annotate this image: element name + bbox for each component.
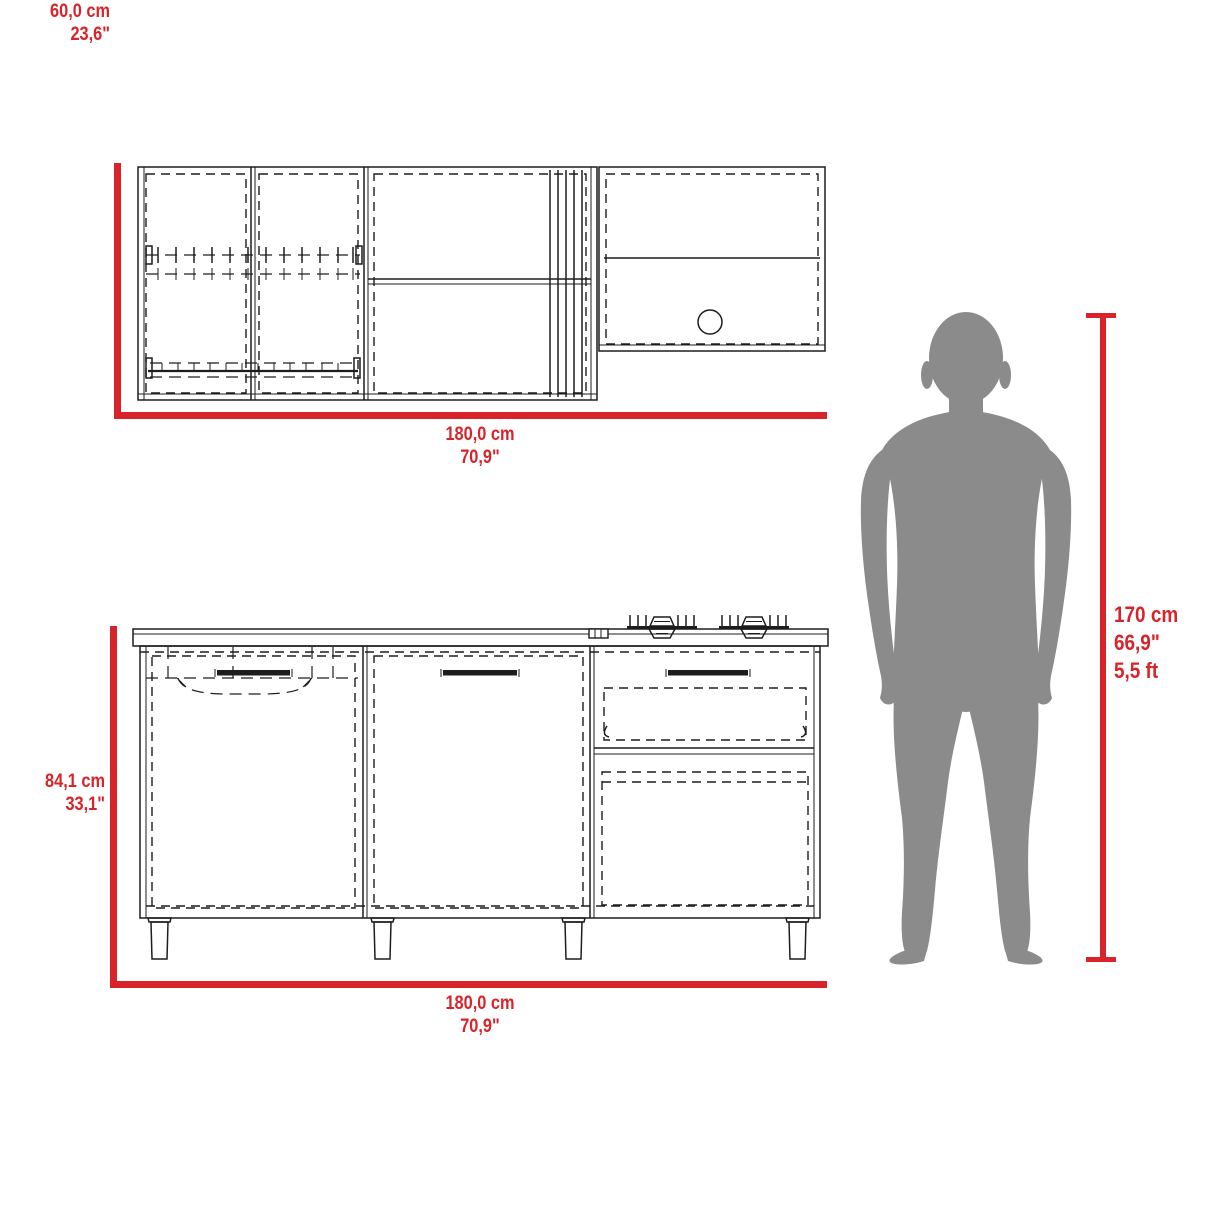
human-silhouette (861, 312, 1071, 965)
base-cabinet-height-in: 33,1" (15, 793, 105, 816)
wall-cabinet-height-in: 23,6" (15, 23, 110, 46)
wall-cabinet-height-label: 60,0 cm 23,6" (15, 0, 110, 46)
wall-cabinet-drawing (138, 167, 825, 400)
wall-cabinet-dimension-lines (114, 163, 827, 419)
base-cabinet-width-label: 180,0 cm 70,9" (351, 992, 609, 1038)
base-cabinet-dimension-lines (110, 626, 827, 988)
base-cabinet-width-in: 70,9" (351, 1015, 609, 1038)
product-dimensions-diagram: 60,0 cm 23,6" 180,0 cm 70,9" 84,1 cm 33,… (0, 0, 1214, 1214)
base-cabinet-height-label: 84,1 cm 33,1" (15, 770, 105, 816)
wall-cabinet-width-cm: 180,0 cm (351, 423, 609, 446)
base-cabinet-drawing (133, 615, 828, 959)
wall-cabinet-height-cm: 60,0 cm (15, 0, 110, 23)
person-height-in: 66,9" (1114, 629, 1178, 657)
person-height-ruler (1086, 313, 1116, 962)
wall-cabinet-width-label: 180,0 cm 70,9" (351, 423, 609, 469)
wall-cabinet-width-in: 70,9" (351, 446, 609, 469)
person-height-cm: 170 cm (1114, 601, 1178, 629)
base-cabinet-height-cm: 84,1 cm (15, 770, 105, 793)
person-height-label: 170 cm 66,9" 5,5 ft (1114, 601, 1178, 685)
person-height-ft: 5,5 ft (1114, 657, 1178, 685)
base-cabinet-width-cm: 180,0 cm (351, 992, 609, 1015)
